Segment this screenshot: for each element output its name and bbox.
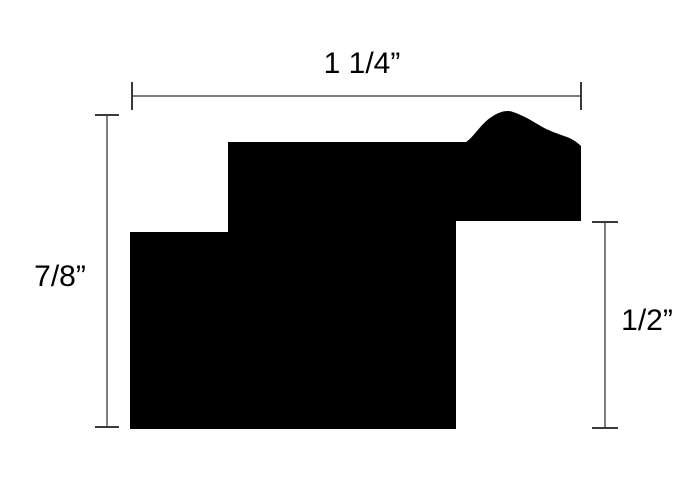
right-dimension-bottom-tick xyxy=(592,427,618,429)
width-dimension-label: 1 1/4” xyxy=(262,47,462,81)
top-dimension xyxy=(131,82,582,110)
moulding-profile-diagram: 1 1/4” 7/8” 1/2” xyxy=(0,0,700,500)
right-dimension-top-tick xyxy=(592,221,618,223)
left-dimension-bottom-tick xyxy=(95,426,119,428)
top-dimension-line xyxy=(133,95,581,97)
left-dimension-top-tick xyxy=(95,114,119,116)
rabbet-dimension-label: 1/2” xyxy=(597,304,697,338)
top-dimension-right-tick xyxy=(580,82,582,110)
top-dimension-left-tick xyxy=(131,82,133,110)
height-dimension-label: 7/8” xyxy=(0,260,120,294)
moulding-profile-shape xyxy=(130,111,581,429)
